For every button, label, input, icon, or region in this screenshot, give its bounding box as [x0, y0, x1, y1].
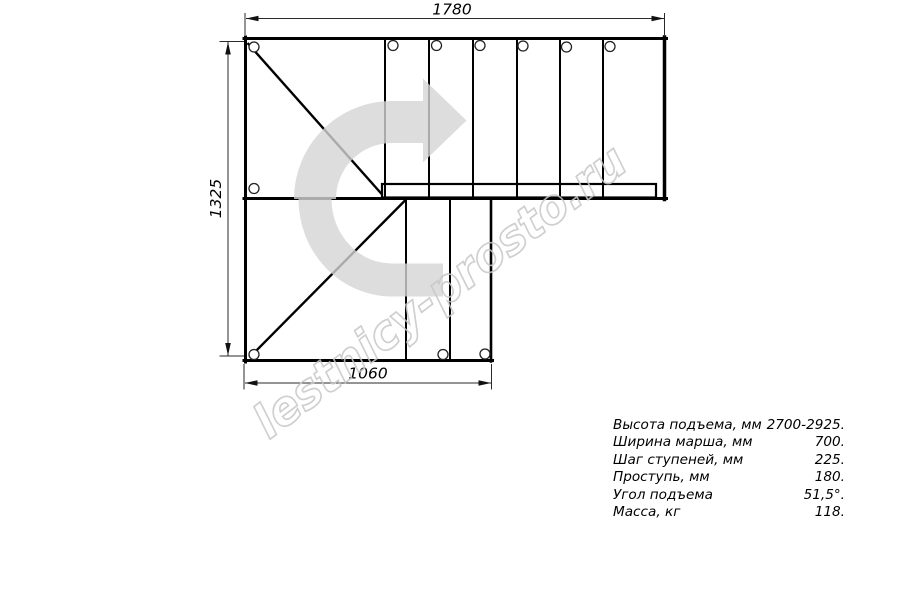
spec-label: Проступь, мм	[613, 469, 710, 486]
spec-label: Ширина марша, мм	[613, 434, 753, 451]
spec-value: 2700-2925.	[767, 417, 845, 434]
dim-left-label: 1325	[207, 179, 225, 218]
direction-arrow-tail	[315, 199, 443, 280]
spec-value: 51,5°.	[804, 487, 845, 504]
spec-row-tread: Проступь, мм 180.	[613, 469, 845, 486]
spec-label: Шаг ступеней, мм	[613, 452, 743, 469]
spec-value: 180.	[815, 469, 845, 486]
specs-table: Высота подъема, мм 2700-2925. Ширина мар…	[613, 417, 845, 521]
stair-drawing-page: 1780 1325 1060	[0, 0, 900, 600]
dim-top-label: 1780	[432, 1, 472, 19]
spec-label: Масса, кг	[613, 504, 680, 521]
spec-label: Высота подъема, мм	[613, 417, 762, 434]
spec-row-height: Высота подъема, мм 2700-2925.	[613, 417, 845, 434]
spec-value: 700.	[815, 434, 845, 451]
direction-arrow-shaft	[315, 122, 423, 199]
spec-value: 118.	[815, 504, 845, 521]
spec-row-angle: Угол подъема 51,5°.	[613, 487, 845, 504]
spec-value: 225.	[815, 452, 845, 469]
direction-arrow	[315, 79, 467, 281]
spec-row-flight-width: Ширина марша, мм 700.	[613, 434, 845, 451]
spec-row-mass: Масса, кг 118.	[613, 504, 845, 521]
spec-row-step-pitch: Шаг ступеней, мм 225.	[613, 452, 845, 469]
direction-arrow-head	[423, 79, 467, 163]
spec-label: Угол подъема	[613, 487, 713, 504]
